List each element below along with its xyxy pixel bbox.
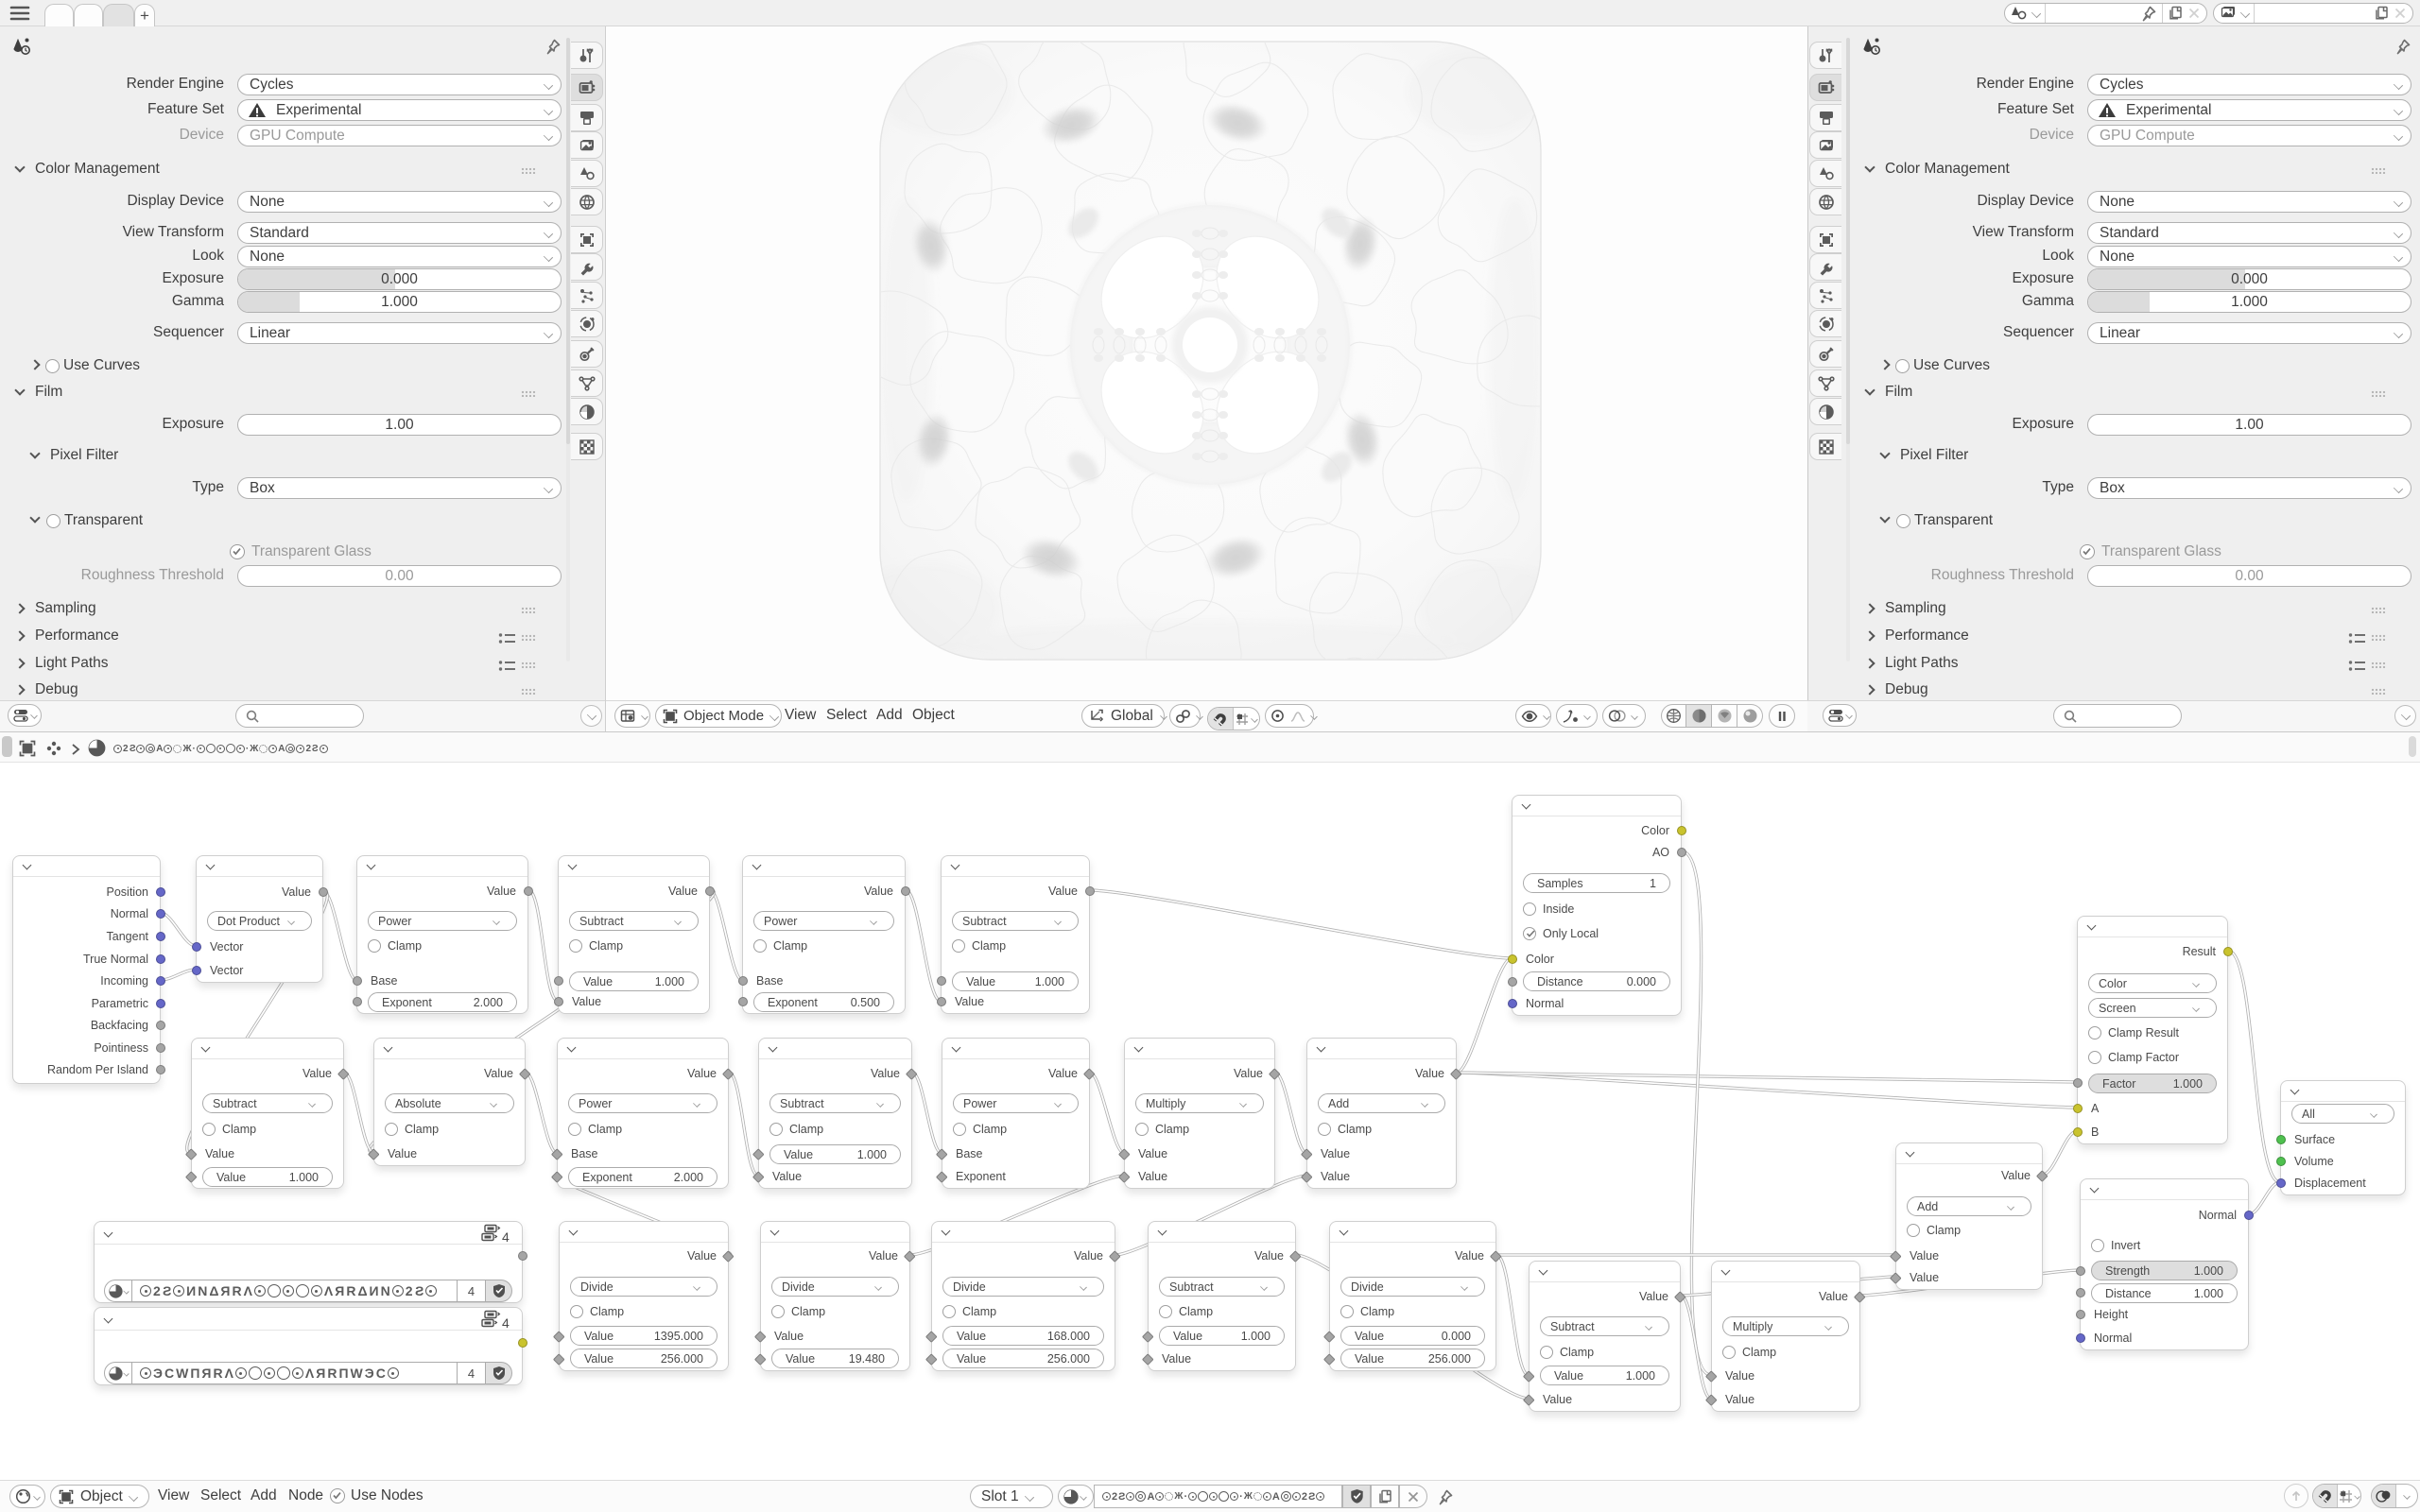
svg-text:4: 4: [502, 1229, 510, 1245]
svg-text:4: 4: [502, 1315, 510, 1331]
